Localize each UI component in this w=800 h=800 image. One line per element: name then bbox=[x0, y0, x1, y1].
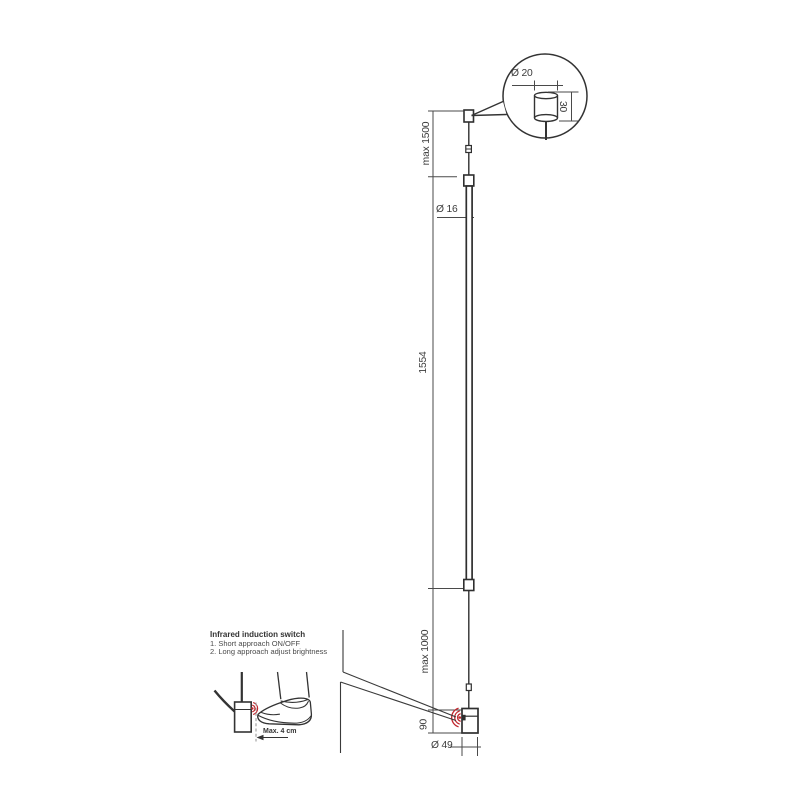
switch-note-line-2: 2. Long approach adjust brightness bbox=[210, 648, 340, 656]
dim-label-canopy-height: 30 bbox=[557, 91, 568, 122]
shoe-icon bbox=[258, 698, 312, 725]
switch-note: Infrared induction switch 1. Short appro… bbox=[210, 630, 340, 656]
pendant-lamp bbox=[462, 110, 478, 733]
infrared-wave-dot bbox=[459, 716, 462, 719]
diagram-linework bbox=[0, 0, 800, 800]
dim-label-rod-length: 1554 bbox=[418, 339, 429, 386]
callout-diagonal-upper bbox=[343, 672, 456, 717]
infrared-waves-icon bbox=[452, 708, 461, 726]
illustration-lamp-head bbox=[235, 702, 252, 732]
dim-label-canopy-diameter: Ø 20 bbox=[511, 68, 533, 79]
illustration-cord bbox=[215, 691, 235, 712]
rod-bottom-connector bbox=[464, 580, 474, 591]
rod-top-connector bbox=[464, 175, 474, 186]
magnifier-callout bbox=[341, 630, 457, 753]
dim-label-rod-diameter: Ø 16 bbox=[436, 204, 458, 215]
illustration-wave-dot bbox=[251, 707, 253, 709]
dim-label-head-diameter: Ø 49 bbox=[431, 740, 453, 751]
lamp-dimension-diagram: max 1500 Ø 16 1554 max 1000 90 Ø 49 Ø 20… bbox=[0, 0, 800, 800]
distance-arrowhead-icon bbox=[257, 735, 264, 740]
dim-label-head-height: 90 bbox=[419, 710, 430, 738]
cable-adjuster-lower bbox=[466, 684, 471, 691]
leg-line-left bbox=[278, 672, 281, 699]
lamp-rod bbox=[466, 186, 472, 580]
lamp-head bbox=[462, 709, 478, 734]
infrared-sensor bbox=[462, 715, 465, 721]
distance-label: Max. 4 cm bbox=[263, 728, 296, 735]
detail-balloon bbox=[472, 54, 588, 140]
callout-diagonal-lower bbox=[341, 682, 457, 721]
dim-label-cable-max: max 1000 bbox=[420, 628, 431, 675]
detail-balloon-tail-edge-bottom bbox=[472, 115, 507, 116]
illustration-infrared-waves-icon bbox=[251, 703, 257, 715]
dim-label-suspension-max: max 1500 bbox=[421, 120, 432, 167]
leg-lines bbox=[278, 672, 310, 699]
leg-line-right bbox=[307, 672, 310, 698]
